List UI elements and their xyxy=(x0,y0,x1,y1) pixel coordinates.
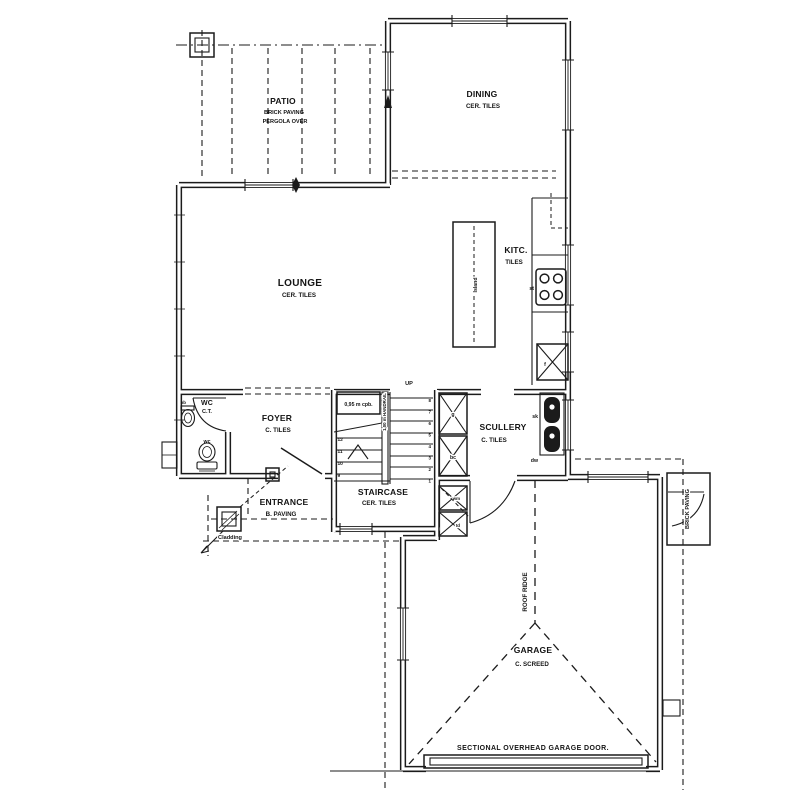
meter-box xyxy=(663,700,680,716)
fridge-label: f xyxy=(544,362,546,368)
garage: ROOF RIDGE SECTIONAL OVERHEAD GARAGE DOO… xyxy=(330,480,680,771)
exterior-pipe-box xyxy=(162,442,177,468)
up-label: UP xyxy=(405,381,413,387)
room-label-foyer: FOYER xyxy=(262,413,292,423)
room-label-kitchen: KITC. xyxy=(504,245,527,255)
room-label-dining: DINING xyxy=(467,89,498,99)
stair-direction-chevron xyxy=(348,445,368,459)
scullery-fittings: g bc sk dw wm td xyxy=(439,393,564,536)
kitchen-fittings: Island st f xyxy=(453,198,568,385)
windows xyxy=(245,15,648,660)
stair-number: 6 xyxy=(429,421,432,426)
broom-cupboard-label: bc xyxy=(450,455,456,461)
tumble-dryer-icon xyxy=(439,512,467,536)
stair-number: 12 xyxy=(338,437,344,443)
cladding-label: Cladding xyxy=(218,535,243,541)
side-paving-nook: BRICK PAVING xyxy=(667,473,710,545)
room-label-staircase: STAIRCASE xyxy=(358,487,408,497)
fridge-icon xyxy=(537,344,568,380)
garage-finish: C. SCREED xyxy=(515,661,549,668)
garage-entry-door xyxy=(470,481,515,523)
room-label-entrance: ENTRANCE xyxy=(260,497,309,507)
floor-plan-drawing: Island st f 0,95 m cpb. 1,00 m HANDRAIL … xyxy=(0,0,807,806)
staircase-finish: CER. TILES xyxy=(362,500,396,507)
stair-number: 8 xyxy=(429,398,432,403)
scullery-finish: C. TILES xyxy=(481,437,506,444)
sink-icon xyxy=(540,393,564,455)
lounge-finish: CER. TILES xyxy=(282,292,316,299)
room-label-scullery: SCULLERY xyxy=(479,422,526,432)
cupboard-label: 0,95 m cpb. xyxy=(344,402,373,408)
patio-pergola-note: PERGOLA OVER xyxy=(263,119,308,125)
toilet-label: wc xyxy=(203,439,211,445)
entrance-finish: B. PAVING xyxy=(266,511,297,518)
stair-number: 4 xyxy=(429,444,432,449)
patio-finish: BRICK PAVING xyxy=(264,110,304,116)
room-labels: PATIO BRICK PAVING PERGOLA OVER DINING C… xyxy=(201,89,552,668)
tumble-dryer-label: td xyxy=(456,523,460,528)
garage-door-label: SECTIONAL OVERHEAD GARAGE DOOR. xyxy=(457,745,609,752)
garage-door-icon xyxy=(424,755,648,768)
toilet-icon xyxy=(197,443,217,471)
stove-icon xyxy=(536,269,566,305)
floor-plan-canvas: Island st f 0,95 m cpb. 1,00 m HANDRAIL … xyxy=(0,0,807,806)
stove-label: st xyxy=(529,286,534,292)
hand-basin-label: hb xyxy=(181,400,187,405)
stair-number: 2 xyxy=(429,467,432,472)
dining-finish: CER. TILES xyxy=(466,103,500,110)
room-label-patio: PATIO xyxy=(270,96,296,106)
staircase: 0,95 m cpb. 1,00 m HANDRAIL 12 11 10 9 8… xyxy=(334,381,433,484)
stair-number: 11 xyxy=(338,449,343,455)
kitchen-finish: TILES xyxy=(505,259,523,266)
roof-ridge-label: ROOF RIDGE xyxy=(522,572,529,611)
island-label: Island xyxy=(473,278,479,293)
dishwasher-label: dw xyxy=(531,458,539,464)
walls xyxy=(179,21,660,770)
stair-number: 10 xyxy=(338,461,344,467)
wc-finish: C.T. xyxy=(202,409,212,415)
sink-label: sk xyxy=(532,414,538,420)
room-label-wc: WC xyxy=(201,400,213,407)
brick-paving-label: BRICK PAVING xyxy=(685,489,691,529)
geyser-label: g xyxy=(451,412,454,418)
hand-basin-icon xyxy=(181,406,195,427)
handrail-label: 1,00 m HANDRAIL xyxy=(382,393,387,431)
stair-number: 9 xyxy=(338,473,341,479)
foyer-finish: C. TILES xyxy=(265,427,290,434)
room-label-garage: GARAGE xyxy=(514,645,553,655)
room-label-lounge: LOUNGE xyxy=(278,278,323,289)
